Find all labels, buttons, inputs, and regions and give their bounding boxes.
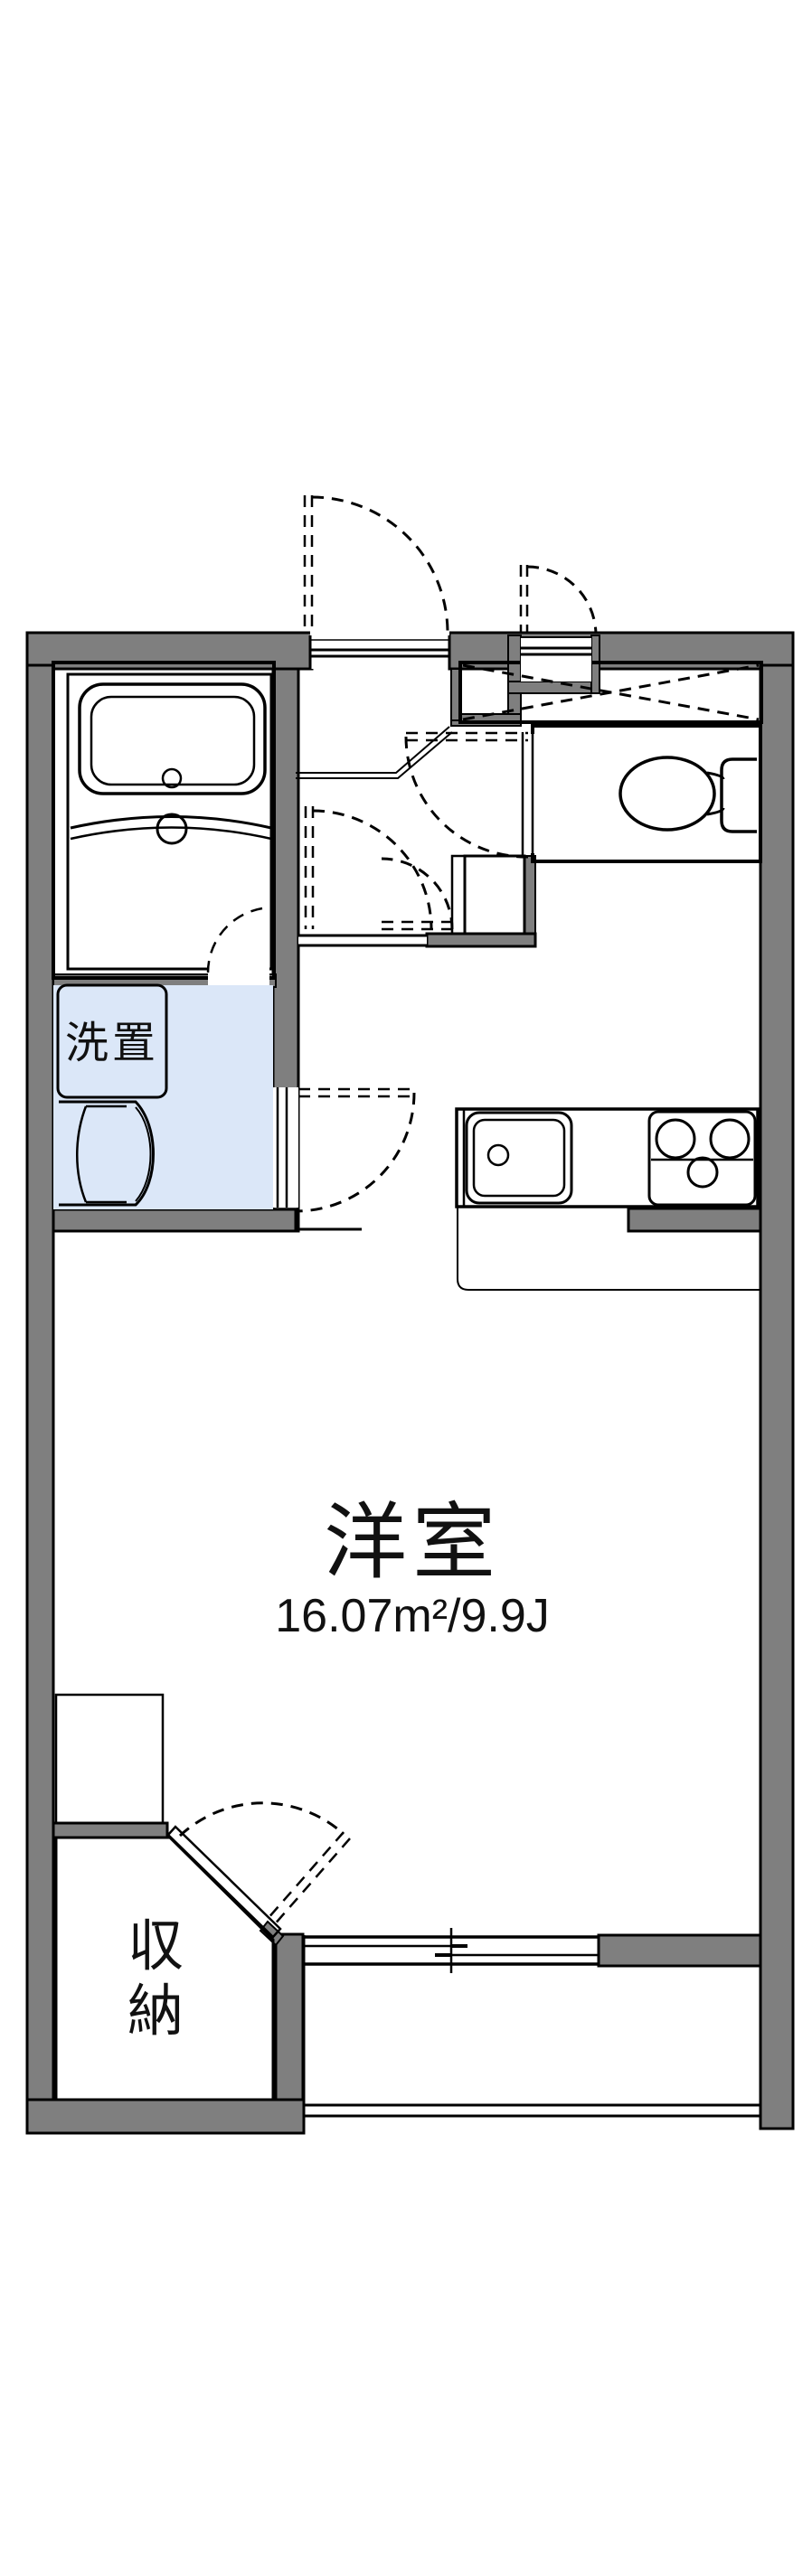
- wall-kitchen-stub: [628, 1208, 760, 1231]
- entry-niche-interior: [521, 636, 591, 682]
- wall-right: [760, 665, 793, 2129]
- storage-label-char2: 納: [127, 1980, 184, 2043]
- page-background: [0, 0, 812, 2576]
- wall-closet-top: [53, 1823, 167, 1838]
- wall-left: [27, 665, 53, 2133]
- floor-plan-canvas: 洗置: [0, 0, 812, 2576]
- main-room-label: 洋室: [324, 1497, 501, 1589]
- washer-space-label: 洗置: [65, 1020, 159, 1067]
- wall-washroom-bottom: [53, 1209, 296, 1231]
- floor-plan-page: { "canvas": { "width": 898, "height": 28…: [0, 0, 812, 2576]
- wall-window-right-section: [599, 1935, 760, 1966]
- wall-closet-bottom: [27, 2100, 304, 2133]
- storage-label-char1: 収: [127, 1915, 184, 1978]
- wall-hall-bottom: [427, 934, 535, 946]
- main-room-area-label: 16.07m²/9.9J: [275, 1590, 550, 1642]
- entry-niche: [521, 636, 591, 682]
